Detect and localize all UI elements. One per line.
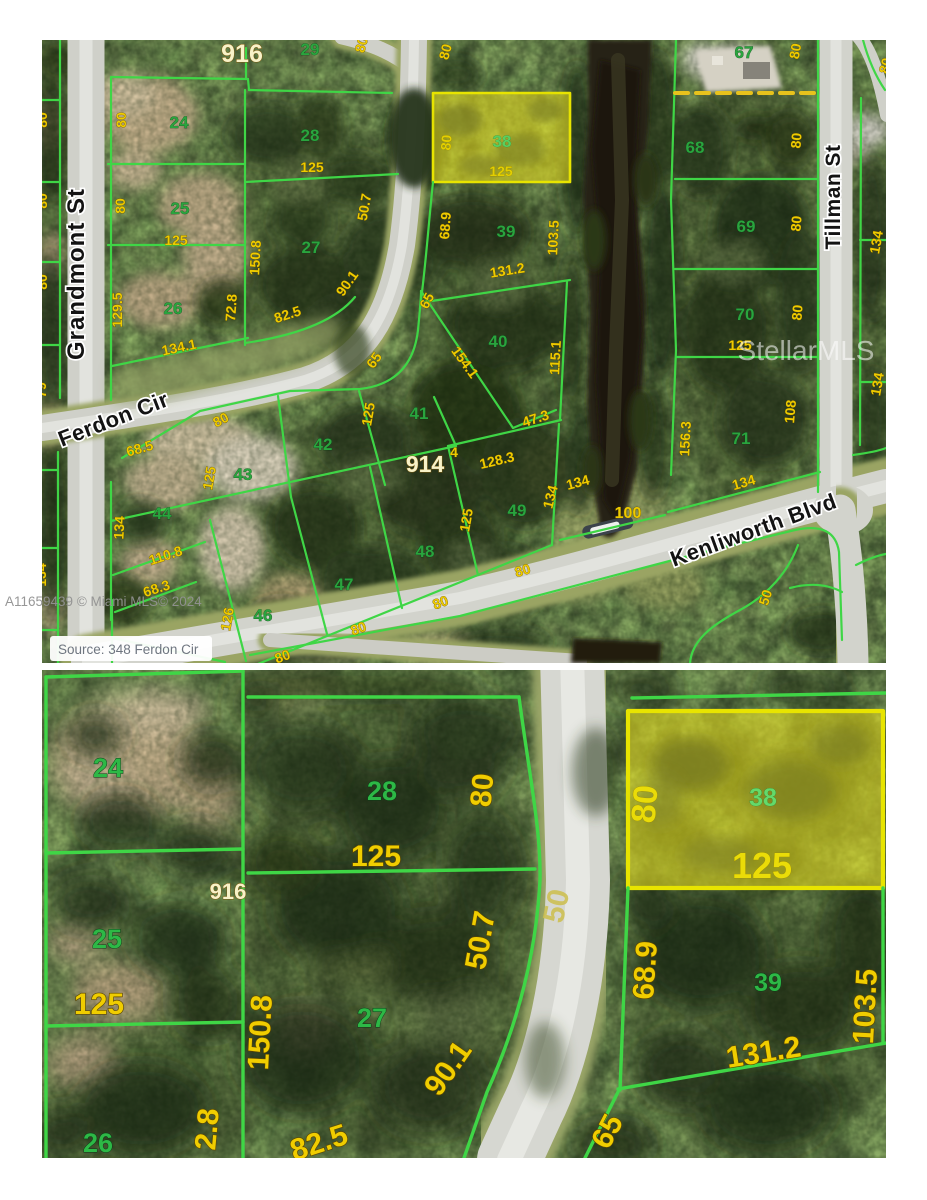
svg-text:Grandmont St: Grandmont St [63, 188, 90, 360]
svg-text:916: 916 [221, 40, 263, 68]
svg-text:4: 4 [450, 444, 458, 460]
svg-text:47: 47 [335, 575, 354, 594]
svg-text:100: 100 [615, 505, 642, 522]
svg-text:80: 80 [112, 198, 128, 214]
svg-text:125: 125 [351, 840, 401, 873]
svg-text:Source: 348 Ferdon Cir: Source: 348 Ferdon Cir [58, 642, 199, 657]
svg-text:25: 25 [171, 199, 190, 218]
svg-text:50: 50 [537, 886, 576, 926]
svg-text:108: 108 [781, 399, 799, 424]
svg-text:27: 27 [302, 238, 321, 257]
svg-text:125: 125 [164, 232, 188, 248]
svg-text:68.9: 68.9 [436, 211, 454, 240]
svg-text:26: 26 [164, 299, 183, 318]
svg-text:44: 44 [153, 504, 172, 523]
svg-text:26: 26 [83, 1128, 113, 1158]
svg-text:48: 48 [416, 542, 435, 561]
svg-text:115.1: 115.1 [546, 340, 564, 375]
svg-text:28: 28 [301, 126, 320, 145]
svg-text:125: 125 [74, 988, 124, 1021]
svg-text:80: 80 [788, 304, 805, 321]
svg-text:24: 24 [170, 113, 189, 132]
svg-text:80: 80 [113, 112, 129, 128]
svg-text:38: 38 [493, 132, 512, 151]
svg-text:71: 71 [732, 429, 751, 448]
svg-text:25: 25 [92, 924, 122, 954]
svg-text:916: 916 [210, 879, 247, 904]
svg-text:67: 67 [735, 43, 754, 62]
svg-text:72.8: 72.8 [222, 293, 240, 322]
svg-text:125: 125 [732, 845, 792, 886]
svg-text:156.3: 156.3 [676, 421, 694, 457]
svg-text:80: 80 [465, 772, 501, 808]
svg-text:2.8: 2.8 [189, 1107, 226, 1151]
svg-text:134: 134 [110, 515, 127, 539]
svg-text:46: 46 [254, 606, 273, 625]
svg-text:80: 80 [786, 42, 804, 60]
svg-text:28: 28 [367, 776, 397, 806]
svg-text:80: 80 [437, 134, 454, 151]
svg-text:42: 42 [314, 435, 333, 454]
svg-text:43: 43 [234, 465, 253, 484]
svg-text:80: 80 [624, 784, 665, 825]
svg-text:A11659439 © Miami MLS© 2024: A11659439 © Miami MLS© 2024 [5, 594, 202, 609]
svg-text:41: 41 [410, 404, 429, 423]
svg-text:129.5: 129.5 [109, 292, 125, 327]
svg-text:69: 69 [737, 217, 756, 236]
svg-text:68.9: 68.9 [627, 940, 664, 1001]
svg-text:125: 125 [489, 163, 513, 179]
svg-text:40: 40 [489, 332, 508, 351]
svg-text:49: 49 [508, 501, 527, 520]
svg-text:39: 39 [754, 969, 782, 997]
svg-text:80: 80 [787, 132, 804, 149]
svg-text:Tillman St: Tillman St [822, 145, 845, 250]
svg-text:150.8: 150.8 [246, 240, 264, 276]
svg-text:125: 125 [300, 159, 324, 175]
svg-text:68: 68 [686, 138, 705, 157]
svg-text:914: 914 [406, 451, 445, 477]
svg-text:150.8: 150.8 [242, 994, 279, 1071]
svg-text:80: 80 [787, 215, 804, 232]
svg-text:27: 27 [357, 1003, 387, 1033]
svg-text:103.5: 103.5 [847, 968, 884, 1045]
svg-text:29: 29 [301, 40, 320, 59]
svg-text:38: 38 [749, 784, 777, 812]
svg-text:39: 39 [497, 222, 516, 241]
svg-text:103.5: 103.5 [544, 220, 562, 256]
svg-text:StellarMLS: StellarMLS [738, 335, 875, 366]
svg-text:24: 24 [93, 753, 123, 783]
svg-text:70: 70 [736, 305, 755, 324]
